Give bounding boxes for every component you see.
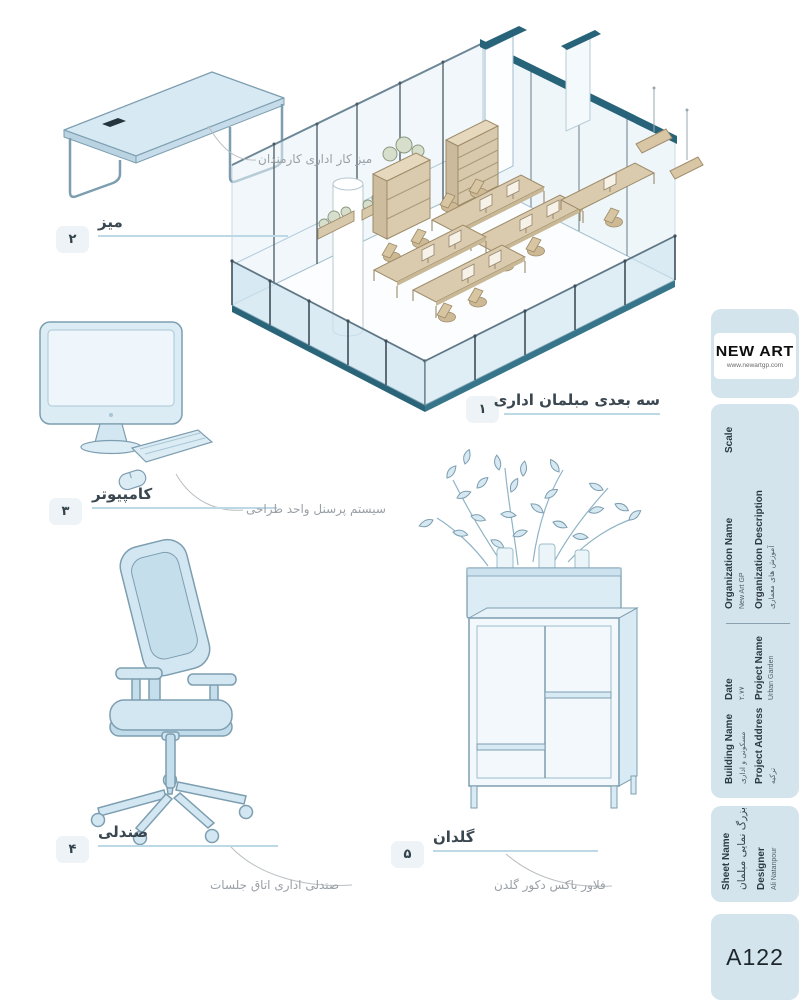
item-underline xyxy=(433,850,598,852)
item-tag-desk: میز xyxy=(98,212,288,237)
designer-value: Ali Natanpour xyxy=(770,818,779,890)
project-address-label: Project Address xyxy=(754,700,767,784)
desk-callout-text: میز کار اداری کارمندان xyxy=(258,152,372,166)
plant-callout-text: فلاور باکس دکور گلدن xyxy=(494,878,606,892)
leaves xyxy=(418,449,642,551)
titleblock-divider xyxy=(726,623,790,624)
office-room-3d-illustration xyxy=(222,14,704,428)
sheet-info-box: Sheet Name بزرگ نمایی مبلمان Designer Al… xyxy=(711,806,799,902)
organization-name-label: Organization Name xyxy=(724,459,737,609)
logo-band: NEW ART www.newartgp.com xyxy=(714,333,796,379)
logo-box: NEW ART www.newartgp.com xyxy=(711,309,799,398)
drawing-sheet: ۱ سه بعدی مبلمان اداری ۲ میز میز کار ادا… xyxy=(0,0,804,1000)
item-number-plant: ۵ xyxy=(391,841,424,868)
imac-monitor xyxy=(40,322,182,454)
item-label-desk: میز xyxy=(98,212,288,232)
organization-name-value: New Art GP xyxy=(738,459,747,609)
scale-label: Scale xyxy=(724,418,737,453)
organization-description-label: Organization Description xyxy=(754,459,767,609)
date-value: ۲.۷۷ xyxy=(738,624,747,700)
foliage xyxy=(437,468,635,566)
shelf-frame xyxy=(469,608,637,808)
sheet-number: A122 xyxy=(711,914,799,1000)
project-name-label: Project Name xyxy=(754,624,767,700)
sheet-number-box: A122 xyxy=(711,914,799,1000)
designer-label: Designer xyxy=(756,818,769,890)
item-number-computer: ۳ xyxy=(49,498,82,525)
sheet-name-value: بزرگ نمایی مبلمان xyxy=(736,818,750,890)
item-number-chair: ۴ xyxy=(56,836,89,863)
scale-group: Scale xyxy=(724,418,799,459)
column xyxy=(333,178,363,336)
item-underline xyxy=(98,235,288,237)
project-address-value: ترکیه xyxy=(768,700,778,784)
computer-callout-text: سیستم پرسنل واحد طراحی xyxy=(246,502,386,516)
plant-box-illustration xyxy=(413,440,658,820)
item-label-computer: کامپیوتر xyxy=(92,484,277,504)
building-name-value: مسکونی و اداری xyxy=(738,700,748,784)
item-label-room: سه بعدی مبلمان اداری xyxy=(504,390,660,410)
newart-logo: NEW ART xyxy=(716,343,794,360)
building-group: Building Name مسکونی و اداری Project Add… xyxy=(724,700,799,784)
organization-description-value: آموزش های معماری xyxy=(767,459,777,609)
date-label: Date xyxy=(724,624,737,700)
item-number-desk: ۲ xyxy=(56,226,89,253)
item-tag-chair: صندلی xyxy=(98,822,278,847)
item-underline xyxy=(504,413,660,415)
date-group: Date ۲.۷۷ Project Name Urban Garden xyxy=(724,624,799,700)
chair-callout-text: صندلی اداری اتاق جلسات xyxy=(210,878,339,892)
office-chair-illustration xyxy=(52,528,292,848)
project-info-box: Building Name مسکونی و اداری Project Add… xyxy=(711,404,799,798)
chair-backrest xyxy=(116,535,214,680)
building-name-label: Building Name xyxy=(724,700,737,784)
item-label-plant: گلدان xyxy=(433,827,598,847)
item-label-chair: صندلی xyxy=(98,822,278,842)
logo-website: www.newartgp.com xyxy=(727,362,783,369)
project-name-value: Urban Garden xyxy=(767,624,776,700)
item-underline xyxy=(98,845,278,847)
organization-group: Organization Name New Art GP Organizatio… xyxy=(724,459,799,609)
item-tag-plant: گلدان xyxy=(433,827,598,852)
sheet-name-label: Sheet Name xyxy=(721,818,734,890)
computer-illustration xyxy=(20,316,220,501)
chair-seat xyxy=(110,700,232,736)
item-tag-room: سه بعدی مبلمان اداری xyxy=(504,390,660,415)
keyboard xyxy=(132,430,212,462)
